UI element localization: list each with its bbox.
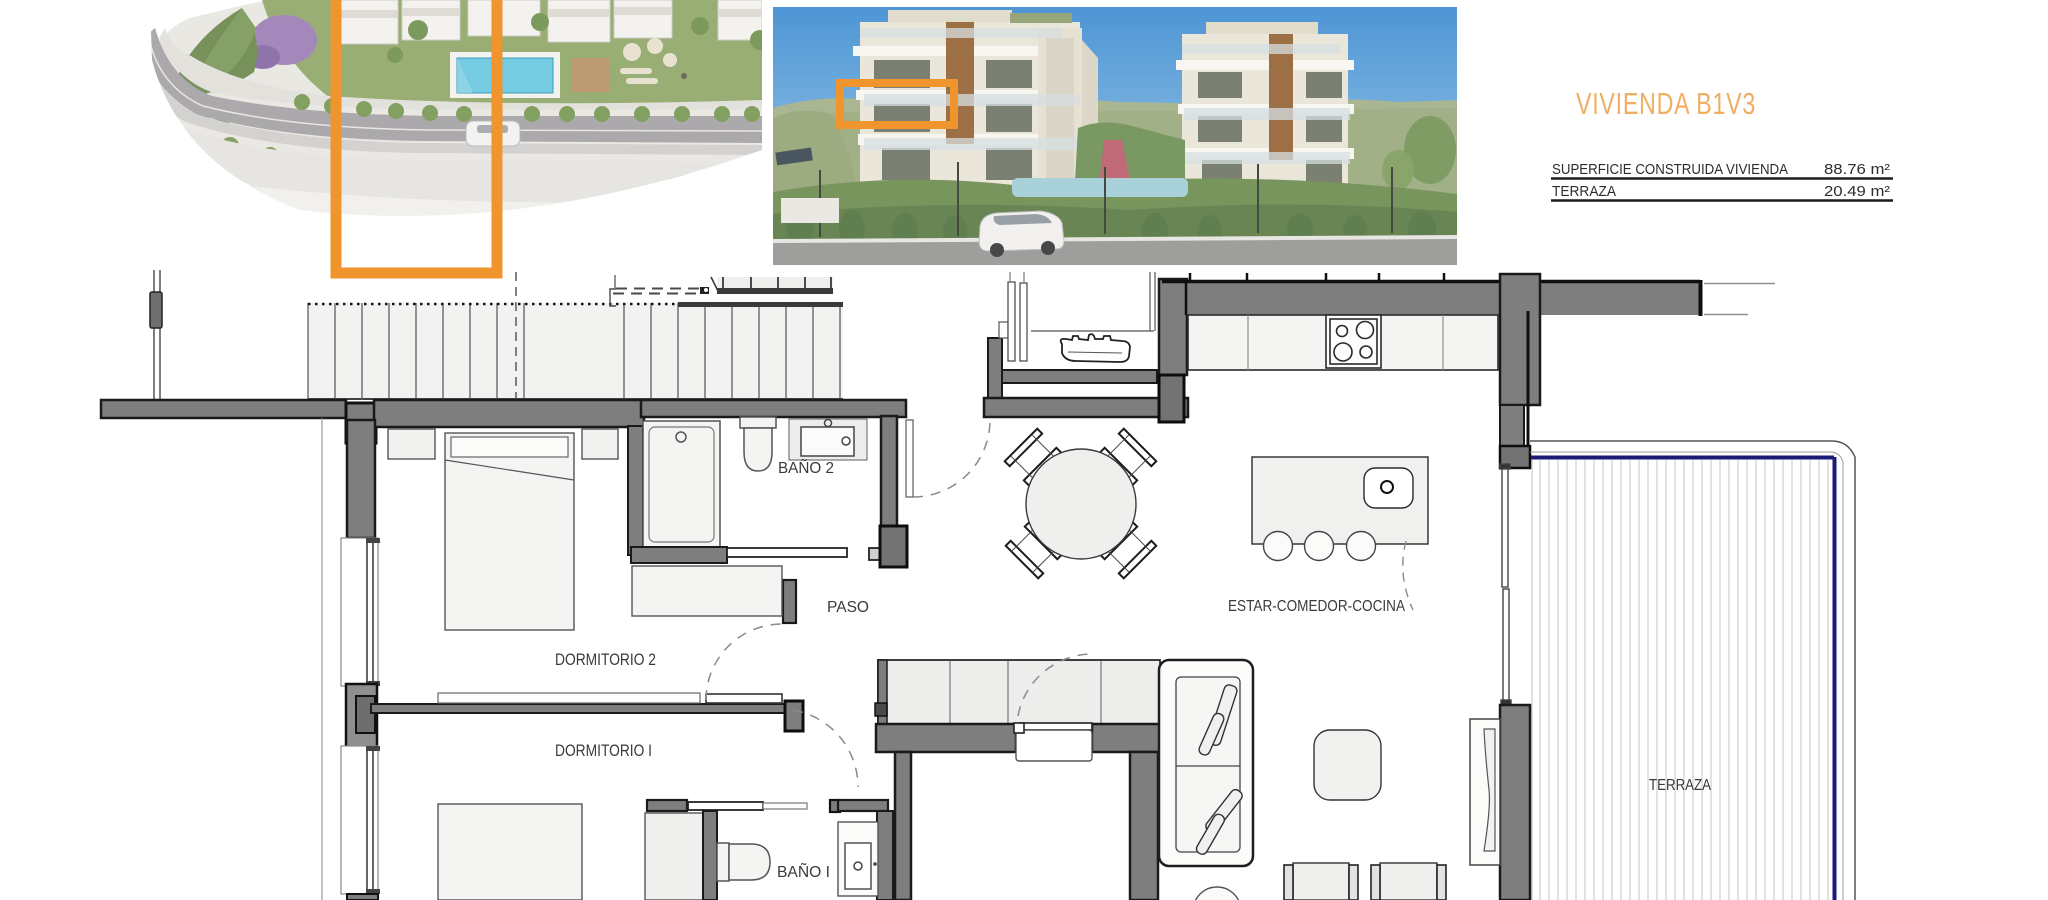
svg-text:20.49 m²: 20.49 m² bbox=[1824, 184, 1890, 200]
svg-text:PASO: PASO bbox=[827, 599, 869, 616]
svg-text:88.76 m²: 88.76 m² bbox=[1824, 162, 1890, 178]
svg-text:TERRAZA: TERRAZA bbox=[1552, 184, 1616, 200]
svg-text:DORMITORIO 2: DORMITORIO 2 bbox=[555, 650, 656, 669]
svg-text:DORMITORIO I: DORMITORIO I bbox=[555, 741, 652, 760]
svg-text:VIVIENDA B1V3: VIVIENDA B1V3 bbox=[1576, 86, 1756, 121]
svg-text:BAÑO I: BAÑO I bbox=[777, 864, 830, 881]
svg-text:SUPERFICIE CONSTRUIDA VIVIENDA: SUPERFICIE CONSTRUIDA VIVIENDA bbox=[1552, 162, 1788, 178]
svg-text:ESTAR-COMEDOR-COCINA: ESTAR-COMEDOR-COCINA bbox=[1228, 598, 1405, 615]
svg-text:BAÑO 2: BAÑO 2 bbox=[778, 460, 834, 477]
svg-text:TERRAZA: TERRAZA bbox=[1649, 777, 1711, 794]
